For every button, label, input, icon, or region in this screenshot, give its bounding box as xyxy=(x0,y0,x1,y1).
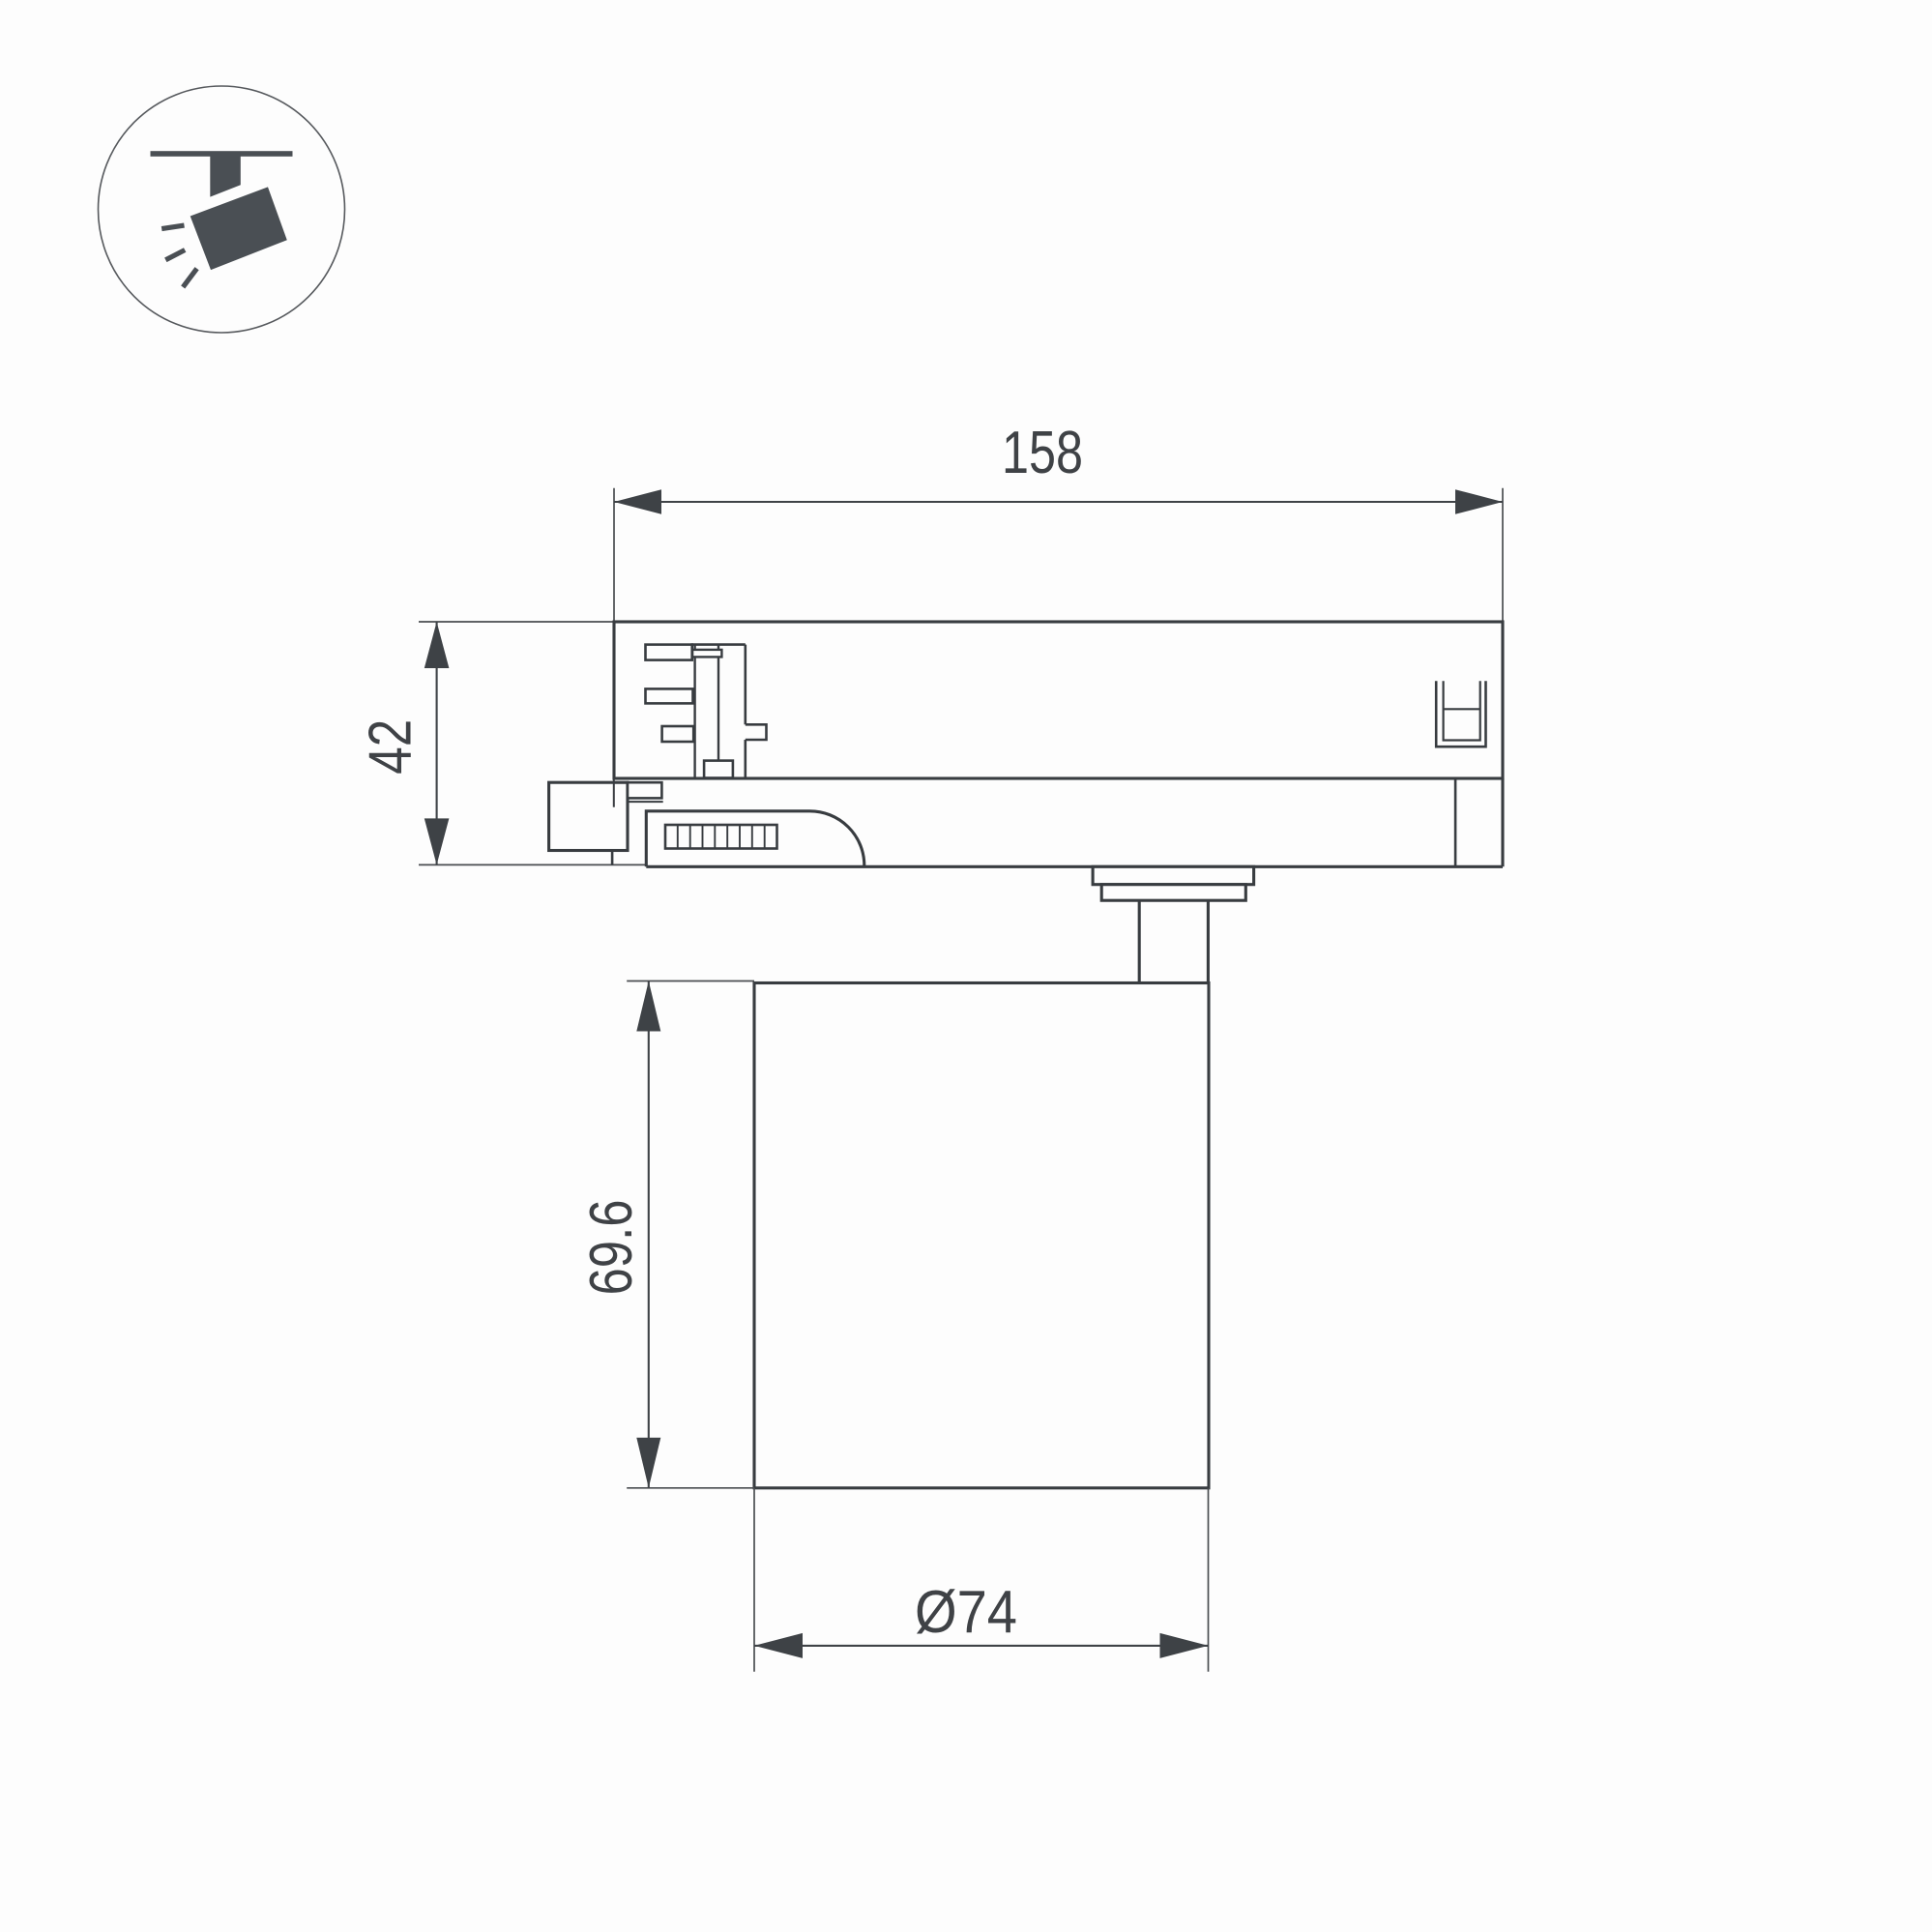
svg-text:158: 158 xyxy=(1002,420,1083,486)
svg-text:69.6: 69.6 xyxy=(578,1200,645,1296)
svg-text:Ø74: Ø74 xyxy=(915,1579,1017,1646)
svg-text:42: 42 xyxy=(358,719,424,775)
